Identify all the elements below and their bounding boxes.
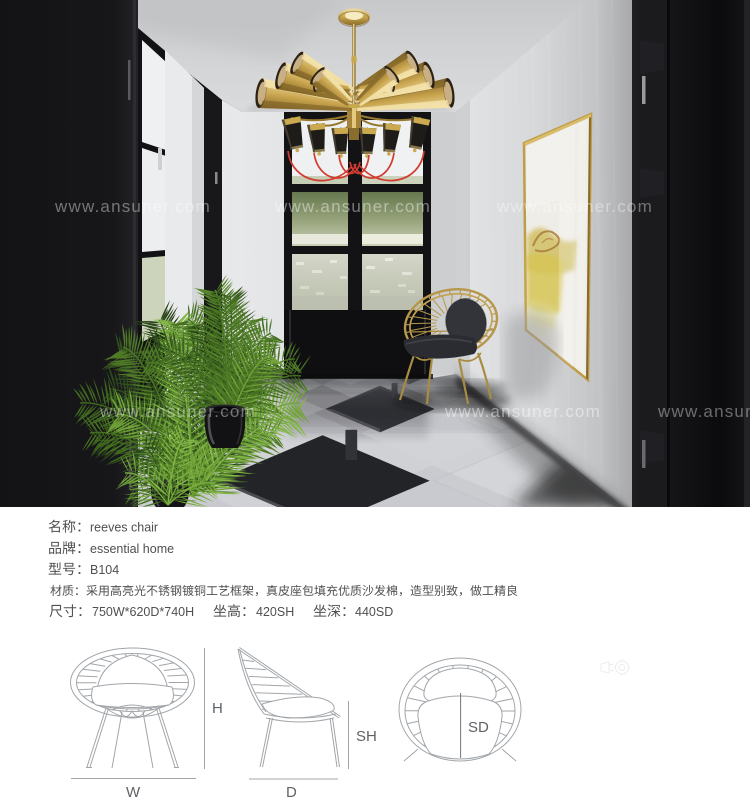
svg-text:www.ansuner.com: www.ansuner.com: [657, 402, 750, 421]
svg-text:www.ansuner.com: www.ansuner.com: [274, 197, 431, 216]
svg-text:750W*620D*740H: 750W*620D*740H: [92, 605, 194, 619]
svg-text:D: D: [286, 784, 297, 801]
svg-text:H: H: [212, 700, 223, 717]
svg-text:SD: SD: [468, 719, 489, 736]
svg-text:W: W: [126, 784, 141, 801]
svg-text:www.ansuner.com: www.ansuner.com: [496, 197, 653, 216]
svg-text:www.ansuner.com: www.ansuner.com: [444, 402, 601, 421]
svg-text:www.ansuner.com: www.ansuner.com: [99, 402, 256, 421]
svg-text:SH: SH: [356, 728, 377, 745]
svg-text:440SD: 440SD: [355, 605, 393, 619]
svg-text:420SH: 420SH: [256, 605, 294, 619]
svg-text:www.ansuner.com: www.ansuner.com: [54, 197, 211, 216]
svg-text:essential home: essential home: [90, 542, 174, 556]
svg-text:B104: B104: [90, 563, 119, 577]
svg-text:reeves chair: reeves chair: [90, 521, 158, 535]
